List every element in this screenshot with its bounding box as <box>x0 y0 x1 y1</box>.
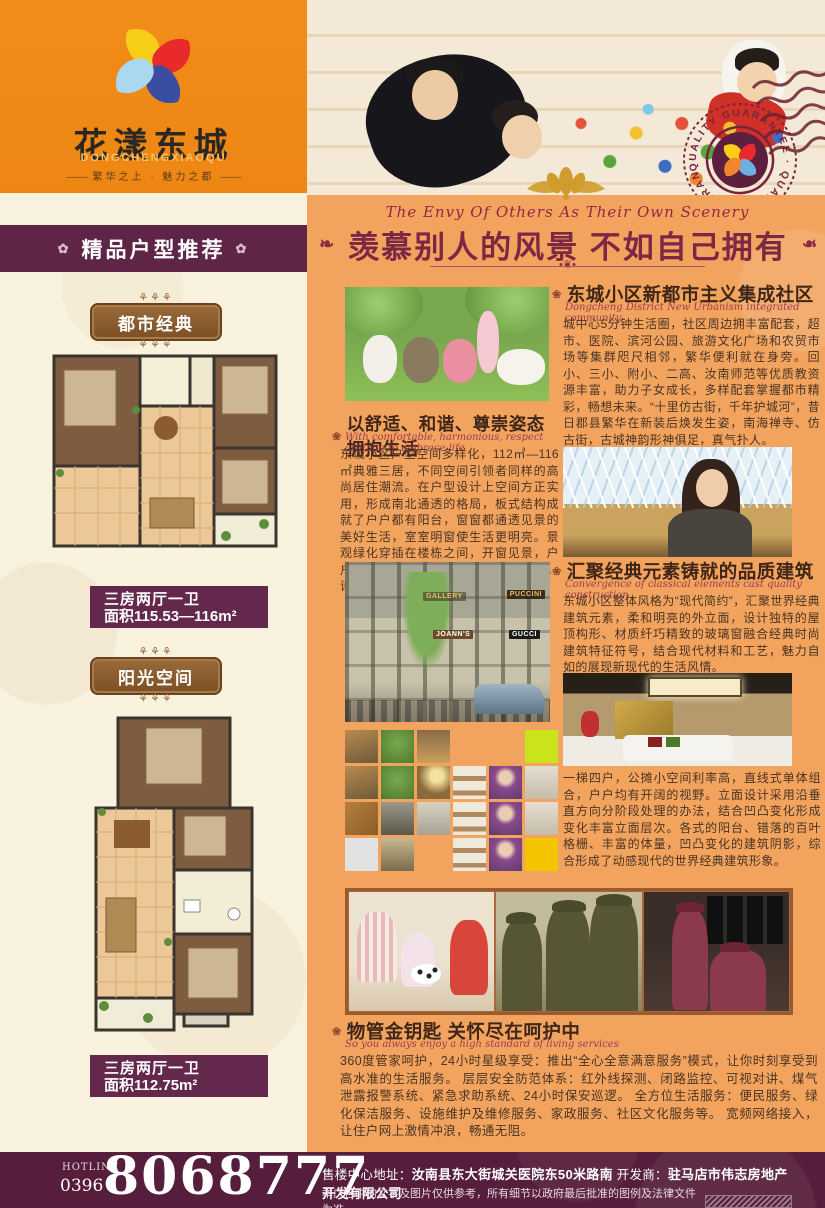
mall-skylight <box>563 447 792 508</box>
tagline-dash-right: —·— <box>220 172 240 183</box>
plan2-area: 面积112.75m² <box>104 1077 268 1094</box>
section-community-body: 城中心5分钟生活圈，社区周边拥丰富配套，超市、医院、滨河公园、旅游文化广场和农贸… <box>563 316 820 448</box>
street-tree <box>397 572 457 682</box>
footer: HOTLINE 0396 8068777 售楼中心地址：汝南县东大街城关医院东5… <box>0 1152 825 1208</box>
pinwheel-logo-icon <box>93 14 213 118</box>
hotline-area-code: 0396 <box>60 1176 103 1196</box>
collage-tile-window <box>417 802 450 835</box>
cctv-monitors <box>707 896 785 944</box>
guard-beret <box>506 912 536 924</box>
plan2-caption: 三房两厅一卫 面积112.75m² <box>90 1055 268 1097</box>
security-monitor-room-photo <box>644 892 789 1011</box>
collage-tile-shop <box>417 730 450 763</box>
floor-plan-sunshine-space <box>88 712 260 1042</box>
collage-tile-model <box>489 802 522 835</box>
tree <box>345 287 423 339</box>
collage-tile-bg <box>453 730 486 763</box>
father-figure <box>357 912 397 982</box>
shop-sign: GUCCI <box>509 630 540 639</box>
tagline-dash-left: —·— <box>66 172 86 183</box>
section-service-body: 360度管家呵护，24小时星级享受：推出“全心全意满意服务”模式，让你时刻享受到… <box>340 1053 818 1141</box>
section-quality-body2: 一梯四户，公摊小空间利率高，直线式单体组合，户户均有开阔的视野。立面设计采用沿垂… <box>563 770 821 869</box>
property-flyer: 花漾东城 DONGCHENGXIAOQU —·— 繁华之上 · 魅力之都 —·—… <box>0 0 825 1208</box>
flower-bullet-icon: ❀ <box>332 1025 342 1038</box>
collage-tile-wood <box>345 802 378 835</box>
gold-folding-screen <box>615 701 673 739</box>
address-label: 售楼中心地址： <box>322 1168 412 1182</box>
red-lantern <box>581 711 599 737</box>
guard-beret <box>552 900 586 912</box>
girl-figure <box>477 311 499 373</box>
guard-figure <box>710 950 766 1011</box>
guard-figure <box>590 896 638 1011</box>
shopper-sweater <box>668 509 752 557</box>
badge-ornament-icon: ⚘⚘⚘ <box>90 695 222 704</box>
plan1-caption: 三房两厅一卫 面积115.53—116m² <box>90 586 268 628</box>
developer-label: 开发商： <box>617 1168 668 1182</box>
plans-section-header: ✿ 精品户型推荐 ✿ <box>0 225 307 272</box>
living-room-photo <box>563 673 792 766</box>
collage-tile-people <box>381 802 414 835</box>
saluting-guards-photo <box>496 892 641 1011</box>
divider-ornament-icon: •❦• <box>430 258 705 271</box>
address-value: 汝南县东大街城关医院东50米路南 <box>412 1167 613 1182</box>
collage-tile-model <box>489 838 522 871</box>
flower-icon: ✿ <box>236 241 250 257</box>
collage-tile-shelf <box>525 802 558 835</box>
plan2-rooms: 三房两厅一卫 <box>104 1060 268 1077</box>
section-quality-body: 东城小区整体风格为“现代简约”，汇聚世界经典建筑元素，柔和明亮的外立面，设计独特… <box>563 593 820 676</box>
plans-header-text: 精品户型推荐 <box>82 234 226 264</box>
mother-face <box>502 115 542 159</box>
floor-plan-urban-classic <box>50 348 280 558</box>
service-photo-strip <box>345 888 793 1015</box>
guard-figure <box>672 910 708 1010</box>
hatch-pattern <box>705 1195 792 1208</box>
dalmatian-plush <box>411 964 441 984</box>
guard-figure <box>502 921 542 1011</box>
flower-bullet-icon: ❀ <box>332 430 342 443</box>
flower-bullet-icon: ❀ <box>552 288 562 301</box>
grandmother-figure <box>443 339 477 383</box>
collage-tile-amber <box>525 838 558 871</box>
plan1-area: 面积115.53—116m² <box>104 608 268 625</box>
collage-tile-model <box>489 766 522 799</box>
guard-figure <box>546 906 590 1011</box>
collage-tile-lamp <box>417 766 450 799</box>
shop-sign: GALLERY <box>423 592 466 601</box>
parked-car <box>474 684 544 714</box>
mall-shopper-photo <box>563 447 792 557</box>
badge-ornament-icon: ⚘⚘⚘ <box>90 294 222 303</box>
logo-block: 花漾东城 DONGCHENGXIAOQU —·— 繁华之上 · 魅力之都 —·— <box>0 0 307 193</box>
plan2-badge-wrap: ⚘⚘⚘ 阳光空间 ⚘⚘⚘ <box>90 648 222 704</box>
ceiling-light <box>648 677 742 697</box>
shopper-face <box>696 469 728 507</box>
brand-name-pinyin: DONGCHENGXIAOQU <box>0 152 307 164</box>
collage-tile-shelf <box>525 766 558 799</box>
badge-ornament-icon: ⚘⚘⚘ <box>90 648 222 657</box>
mother-figure <box>497 349 545 385</box>
gold-crest-ornament-icon <box>525 163 607 203</box>
floral-ornament-icon: ❧ <box>319 234 336 255</box>
father-figure <box>403 337 439 383</box>
collage-tile-shoes <box>453 766 486 799</box>
family-home-photo <box>349 892 494 1011</box>
street-life-collage <box>345 730 558 876</box>
collage-tile-gray <box>345 838 378 871</box>
collage-tile-street <box>345 766 378 799</box>
footer-disclaimer-line: 本广告中的文字及图片仅供参考，所有细节以政府最后批准的图例及法律文件为准。 <box>322 1185 792 1208</box>
floral-ornament-icon: ❧ <box>800 234 817 255</box>
collage-tile-store <box>381 838 414 871</box>
plan1-badge-wrap: ⚘⚘⚘ 都市经典 ⚘⚘⚘ <box>90 294 222 350</box>
collage-tile-bg <box>417 838 450 871</box>
section-service-english: So you always enjoy a high standard of l… <box>345 1039 795 1050</box>
collage-tile-lime <box>525 730 558 763</box>
plan2-badge: 阳光空间 <box>90 657 222 695</box>
hero-divider-line <box>430 266 705 267</box>
collage-tile-bg <box>489 730 522 763</box>
shop-sign: PUCCINI <box>507 590 545 599</box>
hero-subtitle-english: The Envy Of Others As Their Own Scenery <box>330 203 805 221</box>
collage-tile-shoes <box>453 838 486 871</box>
green-cushion <box>666 737 680 747</box>
flower-icon: ✿ <box>58 241 72 257</box>
father-face <box>412 70 458 120</box>
flower-bullet-icon: ❀ <box>552 565 562 578</box>
collage-tile-shoes <box>453 802 486 835</box>
collage-tile-tree <box>381 766 414 799</box>
guard-cap <box>676 902 704 912</box>
shopping-street-photo: GALLERYPUCCINIJOANN'SGUCCI <box>345 562 550 722</box>
grandfather-figure <box>363 335 397 383</box>
collage-tile-tree <box>381 730 414 763</box>
collage-tile-street <box>345 730 378 763</box>
plan1-rooms: 三房两厅一卫 <box>104 591 268 608</box>
guard-cap <box>720 942 750 952</box>
disclaimer-text: 本广告中的文字及图片仅供参考，所有细节以政府最后批准的图例及法律文件为准。 <box>322 1185 699 1208</box>
park-family-photo <box>345 287 549 401</box>
red-cushion <box>648 737 662 747</box>
guard-beret <box>596 894 632 906</box>
mother-figure <box>450 920 488 995</box>
shop-sign: JOANN'S <box>433 630 473 639</box>
plan1-badge: 都市经典 <box>90 303 222 341</box>
brand-tagline: —·— 繁华之上 · 魅力之都 —·— <box>0 168 307 183</box>
